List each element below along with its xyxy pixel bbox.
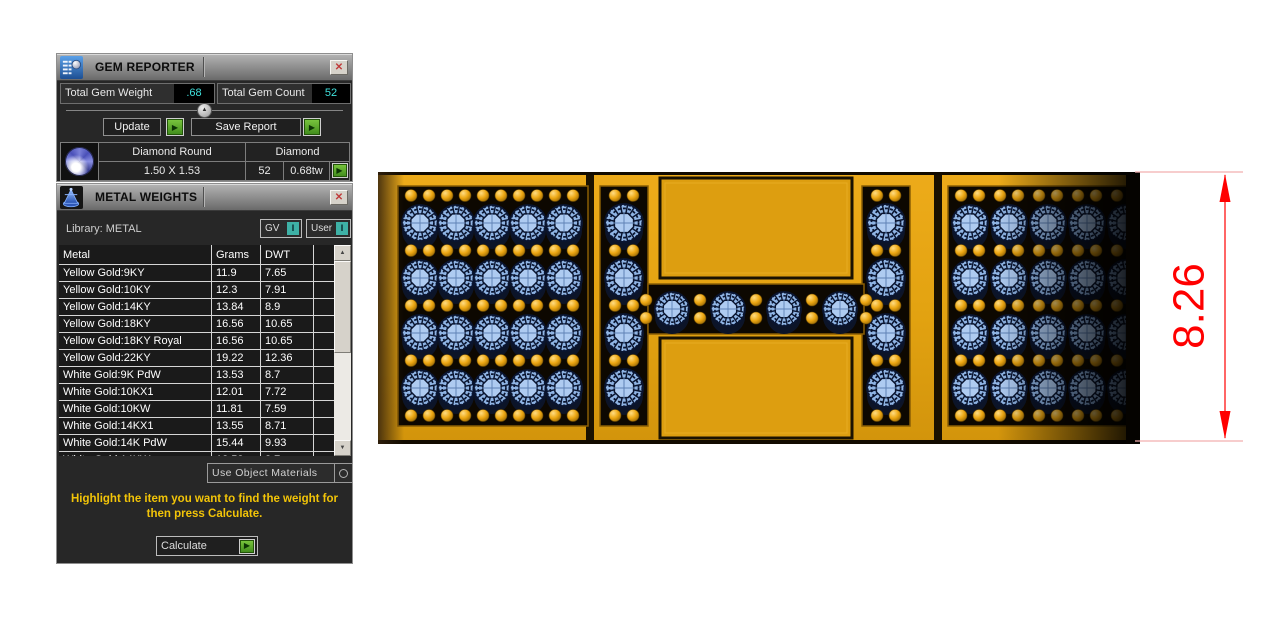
table-row[interactable]: White Gold:10KX112.017.72	[59, 384, 334, 401]
prong-bead-icon	[567, 410, 579, 422]
diamond-icon	[65, 147, 94, 176]
filler-cell	[313, 350, 334, 366]
prong-bead-icon	[477, 410, 489, 422]
diamond-gem[interactable]	[474, 370, 510, 406]
grams-cell: 13.84	[211, 299, 260, 315]
diamond-gem[interactable]	[605, 314, 643, 352]
table-row[interactable]: Yellow Gold:18KY Royal16.5610.65	[59, 333, 334, 350]
dwt-cell: 9.93	[260, 435, 313, 451]
filler-cell	[313, 401, 334, 417]
grams-cell: 12.01	[211, 384, 260, 400]
gem-thumbnail	[61, 143, 99, 180]
prong-bead-icon	[495, 300, 507, 312]
prong-bead-icon	[889, 355, 901, 367]
filler-cell	[313, 316, 334, 332]
radio-cell[interactable]	[334, 464, 352, 482]
diamond-gem[interactable]	[474, 315, 510, 351]
filler-cell	[313, 367, 334, 383]
prong-bead-icon	[889, 190, 901, 202]
grams-cell: 12.3	[211, 282, 260, 298]
metal-table-header: Metal Grams DWT	[59, 245, 334, 265]
prong-bead-icon	[889, 245, 901, 257]
prong-bead-icon	[405, 300, 417, 312]
table-scrollbar[interactable]: ▲ ▼	[334, 245, 351, 456]
total-gem-weight-value: .68	[174, 84, 214, 103]
gv-toggle-button[interactable]: GV I	[260, 219, 302, 238]
update-button[interactable]: Update	[103, 118, 161, 136]
prong-bead-icon	[889, 300, 901, 312]
prong-bead-icon	[513, 300, 525, 312]
filler-cell	[313, 282, 334, 298]
prong-bead-icon	[459, 300, 471, 312]
diamond-gem[interactable]	[510, 370, 546, 406]
prong-bead-icon	[441, 190, 453, 202]
instruction-text: Highlight the item you want to find the …	[69, 492, 340, 522]
radio-circle-icon	[339, 469, 348, 478]
prong-bead-icon	[513, 190, 525, 202]
prong-bead-icon	[459, 410, 471, 422]
diamond-gem[interactable]	[510, 315, 546, 351]
prong-bead-icon	[640, 312, 652, 324]
diamond-gem[interactable]	[474, 260, 510, 296]
prong-bead-icon	[694, 294, 706, 306]
gem-size: 1.50 X 1.53	[99, 162, 245, 181]
prong-bead-icon	[609, 410, 621, 422]
prong-bead-icon	[871, 300, 883, 312]
col-header-metal[interactable]: Metal	[59, 245, 211, 264]
prong-bead-icon	[495, 190, 507, 202]
prong-bead-icon	[889, 410, 901, 422]
grams-cell: 13.55	[211, 418, 260, 434]
prong-bead-icon	[627, 245, 639, 257]
close-icon[interactable]: ✕	[330, 60, 348, 75]
diamond-gem[interactable]	[510, 260, 546, 296]
diamond-gem[interactable]	[767, 292, 801, 326]
diamond-gem[interactable]	[867, 314, 905, 352]
prong-bead-icon	[627, 190, 639, 202]
dwt-cell: 8.9	[260, 299, 313, 315]
diamond-gem[interactable]	[605, 204, 643, 242]
prong-bead-icon	[955, 410, 967, 422]
dwt-cell: 7.59	[260, 401, 313, 417]
prong-bead-icon	[871, 245, 883, 257]
grams-cell: 11.9	[211, 265, 260, 281]
prong-bead-icon	[423, 410, 435, 422]
user-label: User	[311, 223, 332, 234]
diamond-gem[interactable]	[711, 292, 745, 326]
grams-cell: 19.22	[211, 350, 260, 366]
library-label: Library: METAL	[66, 223, 142, 235]
user-indicator-icon: I	[336, 222, 348, 235]
dwt-cell: 7.65	[260, 265, 313, 281]
diamond-gem[interactable]	[510, 205, 546, 241]
prong-bead-icon	[441, 410, 453, 422]
prong-bead-icon	[423, 190, 435, 202]
prong-bead-icon	[955, 355, 967, 367]
prong-bead-icon	[477, 245, 489, 257]
diamond-gem[interactable]	[823, 292, 857, 326]
col-header-grams[interactable]: Grams	[211, 245, 260, 264]
prong-bead-icon	[871, 355, 883, 367]
diamond-gem[interactable]	[605, 259, 643, 297]
prong-bead-icon	[973, 410, 985, 422]
dwt-cell: 12.36	[260, 350, 313, 366]
grams-cell: 13.53	[211, 452, 260, 456]
table-row[interactable]: White Gold:10KW11.817.59	[59, 401, 334, 418]
dwt-cell: 7.91	[260, 282, 313, 298]
grams-cell: 13.53	[211, 367, 260, 383]
prong-bead-icon	[955, 300, 967, 312]
diamond-gem[interactable]	[867, 259, 905, 297]
titlebar-divider	[203, 57, 205, 77]
collapse-button[interactable]: ▲	[197, 103, 212, 118]
diamond-gem[interactable]	[546, 370, 582, 406]
titlebar-divider	[203, 187, 205, 207]
gv-label: GV	[265, 223, 279, 234]
dimension-value: 8.26	[1165, 263, 1214, 349]
filler-cell	[313, 333, 334, 349]
prong-bead-icon	[459, 245, 471, 257]
prong-bead-icon	[973, 190, 985, 202]
total-gem-weight-label: Total Gem Weight	[61, 84, 174, 103]
arrowhead-down-icon	[1220, 411, 1231, 439]
diamond-gem[interactable]	[402, 315, 438, 351]
total-gem-count-label: Total Gem Count	[218, 84, 312, 103]
metal-name-cell: White Gold:10KW	[59, 401, 211, 417]
diamond-gem[interactable]	[402, 205, 438, 241]
arrowhead-up-icon	[1220, 174, 1231, 202]
prong-bead-icon	[609, 190, 621, 202]
filler-cell	[313, 452, 334, 456]
prong-bead-icon	[549, 410, 561, 422]
diamond-gem[interactable]	[952, 260, 988, 296]
diamond-gem[interactable]	[438, 205, 474, 241]
diamond-gem[interactable]	[952, 370, 988, 406]
prong-bead-icon	[640, 294, 652, 306]
3d-viewport-jewelry-model[interactable]	[378, 172, 1140, 444]
metal-name-cell: Yellow Gold:14KY	[59, 299, 211, 315]
metal-name-cell: White Gold:9K PdW	[59, 367, 211, 383]
prong-bead-icon	[459, 355, 471, 367]
diamond-gem[interactable]	[546, 260, 582, 296]
prong-bead-icon	[750, 294, 762, 306]
dwt-cell: 10.65	[260, 316, 313, 332]
grams-cell: 11.81	[211, 401, 260, 417]
prong-bead-icon	[405, 190, 417, 202]
gem-row-go-icon[interactable]: ▶	[332, 163, 348, 178]
calculate-button[interactable]: Calculate ▶	[156, 536, 258, 556]
prong-bead-icon	[531, 410, 543, 422]
gem-cut-name: Diamond Round	[99, 143, 245, 162]
prong-bead-icon	[567, 190, 579, 202]
prong-bead-icon	[955, 245, 967, 257]
diamond-gem[interactable]	[867, 369, 905, 407]
prong-bead-icon	[441, 355, 453, 367]
prong-bead-icon	[860, 312, 872, 324]
prong-bead-icon	[567, 245, 579, 257]
prong-bead-icon	[423, 245, 435, 257]
dwt-cell: 8.7	[260, 452, 313, 456]
diamond-gem[interactable]	[474, 205, 510, 241]
gem-total-weight: 0.68tw	[283, 162, 329, 181]
filler-cell	[313, 265, 334, 281]
prong-bead-icon	[627, 410, 639, 422]
diamond-gem[interactable]	[546, 315, 582, 351]
prong-bead-icon	[973, 300, 985, 312]
prong-bead-icon	[860, 294, 872, 306]
metal-table: Metal Grams DWT Yellow Gold:9KY11.97.65Y…	[59, 245, 351, 456]
filler-cell	[313, 299, 334, 315]
col-header-filler	[313, 245, 334, 264]
diamond-gem[interactable]	[952, 315, 988, 351]
prong-bead-icon	[495, 410, 507, 422]
prong-bead-icon	[549, 245, 561, 257]
prong-bead-icon	[459, 190, 471, 202]
prong-bead-icon	[750, 312, 762, 324]
gem-row-action-cell: ▶	[329, 162, 349, 181]
gem-report-grid: Diamond Round Diamond 1.50 X 1.53 52 0.6…	[99, 143, 349, 180]
table-row[interactable]: White Gold:14K PdW15.449.93	[59, 435, 334, 452]
grams-cell: 16.56	[211, 316, 260, 332]
prong-bead-icon	[513, 245, 525, 257]
close-icon[interactable]: ✕	[330, 190, 348, 205]
metal-name-cell: Yellow Gold:18KY Royal	[59, 333, 211, 349]
table-row[interactable]: Yellow Gold:18KY16.5610.65	[59, 316, 334, 333]
diamond-gem[interactable]	[438, 315, 474, 351]
metal-name-cell: Yellow Gold:10KY	[59, 282, 211, 298]
prong-bead-icon	[609, 245, 621, 257]
diamond-gem[interactable]	[402, 370, 438, 406]
diamond-gem[interactable]	[438, 260, 474, 296]
prong-bead-icon	[477, 355, 489, 367]
diamond-gem[interactable]	[655, 292, 689, 326]
table-row[interactable]: White Gold:14KX113.558.71	[59, 418, 334, 435]
prong-bead-icon	[405, 355, 417, 367]
prong-bead-icon	[806, 312, 818, 324]
diamond-gem[interactable]	[867, 204, 905, 242]
prong-bead-icon	[477, 190, 489, 202]
prong-bead-icon	[627, 355, 639, 367]
table-row[interactable]: Yellow Gold:14KY13.848.9	[59, 299, 334, 316]
calculate-label: Calculate	[161, 540, 207, 552]
prong-bead-icon	[495, 245, 507, 257]
prong-bead-icon	[441, 300, 453, 312]
grams-cell: 15.44	[211, 435, 260, 451]
diamond-gem[interactable]	[438, 370, 474, 406]
metal-name-cell: White Gold:14KX1	[59, 418, 211, 434]
metal-name-cell: Yellow Gold:18KY	[59, 316, 211, 332]
prong-bead-icon	[609, 300, 621, 312]
prong-bead-icon	[405, 410, 417, 422]
total-gem-count: Total Gem Count 52	[217, 83, 351, 104]
filler-cell	[313, 418, 334, 434]
table-row[interactable]: Yellow Gold:10KY12.37.91	[59, 282, 334, 299]
gem-reporter-panel: GEM REPORTER ✕ Total Gem Weight .68 Tota…	[56, 53, 353, 182]
dwt-cell: 8.7	[260, 367, 313, 383]
table-row[interactable]: White Gold:14KW13.538.7	[59, 452, 334, 456]
metal-name-cell: Yellow Gold:22KY	[59, 350, 211, 366]
metal-name-cell: White Gold:14K PdW	[59, 435, 211, 451]
prong-bead-icon	[531, 300, 543, 312]
panel-title: METAL WEIGHTS	[95, 190, 197, 204]
prong-bead-icon	[567, 300, 579, 312]
prong-bead-icon	[627, 300, 639, 312]
table-row[interactable]: Yellow Gold:22KY19.2212.36	[59, 350, 334, 367]
metal-name-cell: Yellow Gold:9KY	[59, 265, 211, 281]
prong-bead-icon	[513, 410, 525, 422]
prong-bead-icon	[477, 300, 489, 312]
update-go-icon[interactable]: ▶	[166, 118, 184, 136]
dwt-cell: 8.71	[260, 418, 313, 434]
col-header-dwt[interactable]: DWT	[260, 245, 313, 264]
filler-cell	[313, 384, 334, 400]
prong-bead-icon	[694, 312, 706, 324]
prong-bead-icon	[973, 355, 985, 367]
prong-bead-icon	[973, 245, 985, 257]
table-row[interactable]: White Gold:9K PdW13.538.7	[59, 367, 334, 384]
gem-count: 52	[245, 162, 283, 181]
grams-cell: 16.56	[211, 333, 260, 349]
metal-name-cell: White Gold:14KW	[59, 452, 211, 456]
scrollbar-thumb[interactable]	[334, 261, 351, 353]
prong-bead-icon	[549, 300, 561, 312]
diamond-gem[interactable]	[546, 205, 582, 241]
prong-bead-icon	[871, 190, 883, 202]
filler-cell	[313, 435, 334, 451]
prong-bead-icon	[423, 355, 435, 367]
diamond-gem[interactable]	[952, 205, 988, 241]
dimension-annotation: 8.26	[1133, 164, 1265, 448]
dwt-cell: 7.72	[260, 384, 313, 400]
scroll-up-icon[interactable]: ▲	[334, 245, 351, 261]
prong-bead-icon	[549, 190, 561, 202]
gem-report-row[interactable]: Diamond Round Diamond 1.50 X 1.53 52 0.6…	[60, 142, 350, 181]
workspace: GEM REPORTER ✕ Total Gem Weight .68 Tota…	[0, 0, 1265, 637]
table-row[interactable]: Yellow Gold:9KY11.97.65	[59, 265, 334, 282]
metal-table-body: Yellow Gold:9KY11.97.65Yellow Gold:10KY1…	[59, 265, 334, 456]
gem-reporter-titlebar[interactable]: GEM REPORTER ✕	[57, 54, 352, 81]
jewelry-render[interactable]	[378, 172, 1140, 444]
prong-bead-icon	[871, 410, 883, 422]
scroll-down-icon[interactable]: ▼	[334, 440, 351, 456]
use-object-materials-label: Use Object Materials	[212, 467, 317, 479]
gv-indicator-icon: I	[287, 222, 299, 235]
prong-bead-icon	[423, 300, 435, 312]
metal-weights-panel: METAL WEIGHTS ✕ Library: METAL GV I User…	[56, 183, 353, 564]
prong-bead-icon	[955, 190, 967, 202]
prong-bead-icon	[609, 355, 621, 367]
gem-reporter-icon	[60, 56, 83, 79]
total-gem-weight: Total Gem Weight .68	[60, 83, 215, 104]
metal-weights-titlebar[interactable]: METAL WEIGHTS ✕	[57, 184, 352, 211]
prong-bead-icon	[549, 355, 561, 367]
prong-bead-icon	[513, 355, 525, 367]
panel-title: GEM REPORTER	[95, 60, 195, 74]
prong-bead-icon	[806, 294, 818, 306]
prong-bead-icon	[405, 245, 417, 257]
save-report-go-icon[interactable]: ▶	[303, 118, 321, 136]
save-report-button[interactable]: Save Report	[191, 118, 301, 136]
metal-name-cell: White Gold:10KX1	[59, 384, 211, 400]
total-gem-count-value: 52	[312, 84, 350, 103]
diamond-gem[interactable]	[402, 260, 438, 296]
diamond-gem[interactable]	[605, 369, 643, 407]
metal-weights-icon	[60, 186, 83, 209]
prong-bead-icon	[531, 190, 543, 202]
user-toggle-button[interactable]: User I	[306, 219, 351, 238]
prong-bead-icon	[531, 245, 543, 257]
prong-bead-icon	[495, 355, 507, 367]
calculate-go-icon: ▶	[239, 539, 255, 554]
prong-bead-icon	[567, 355, 579, 367]
prong-bead-icon	[441, 245, 453, 257]
prong-bead-icon	[531, 355, 543, 367]
use-object-materials-button[interactable]: Use Object Materials	[207, 463, 353, 483]
dwt-cell: 10.65	[260, 333, 313, 349]
gem-material: Diamond	[245, 143, 349, 162]
